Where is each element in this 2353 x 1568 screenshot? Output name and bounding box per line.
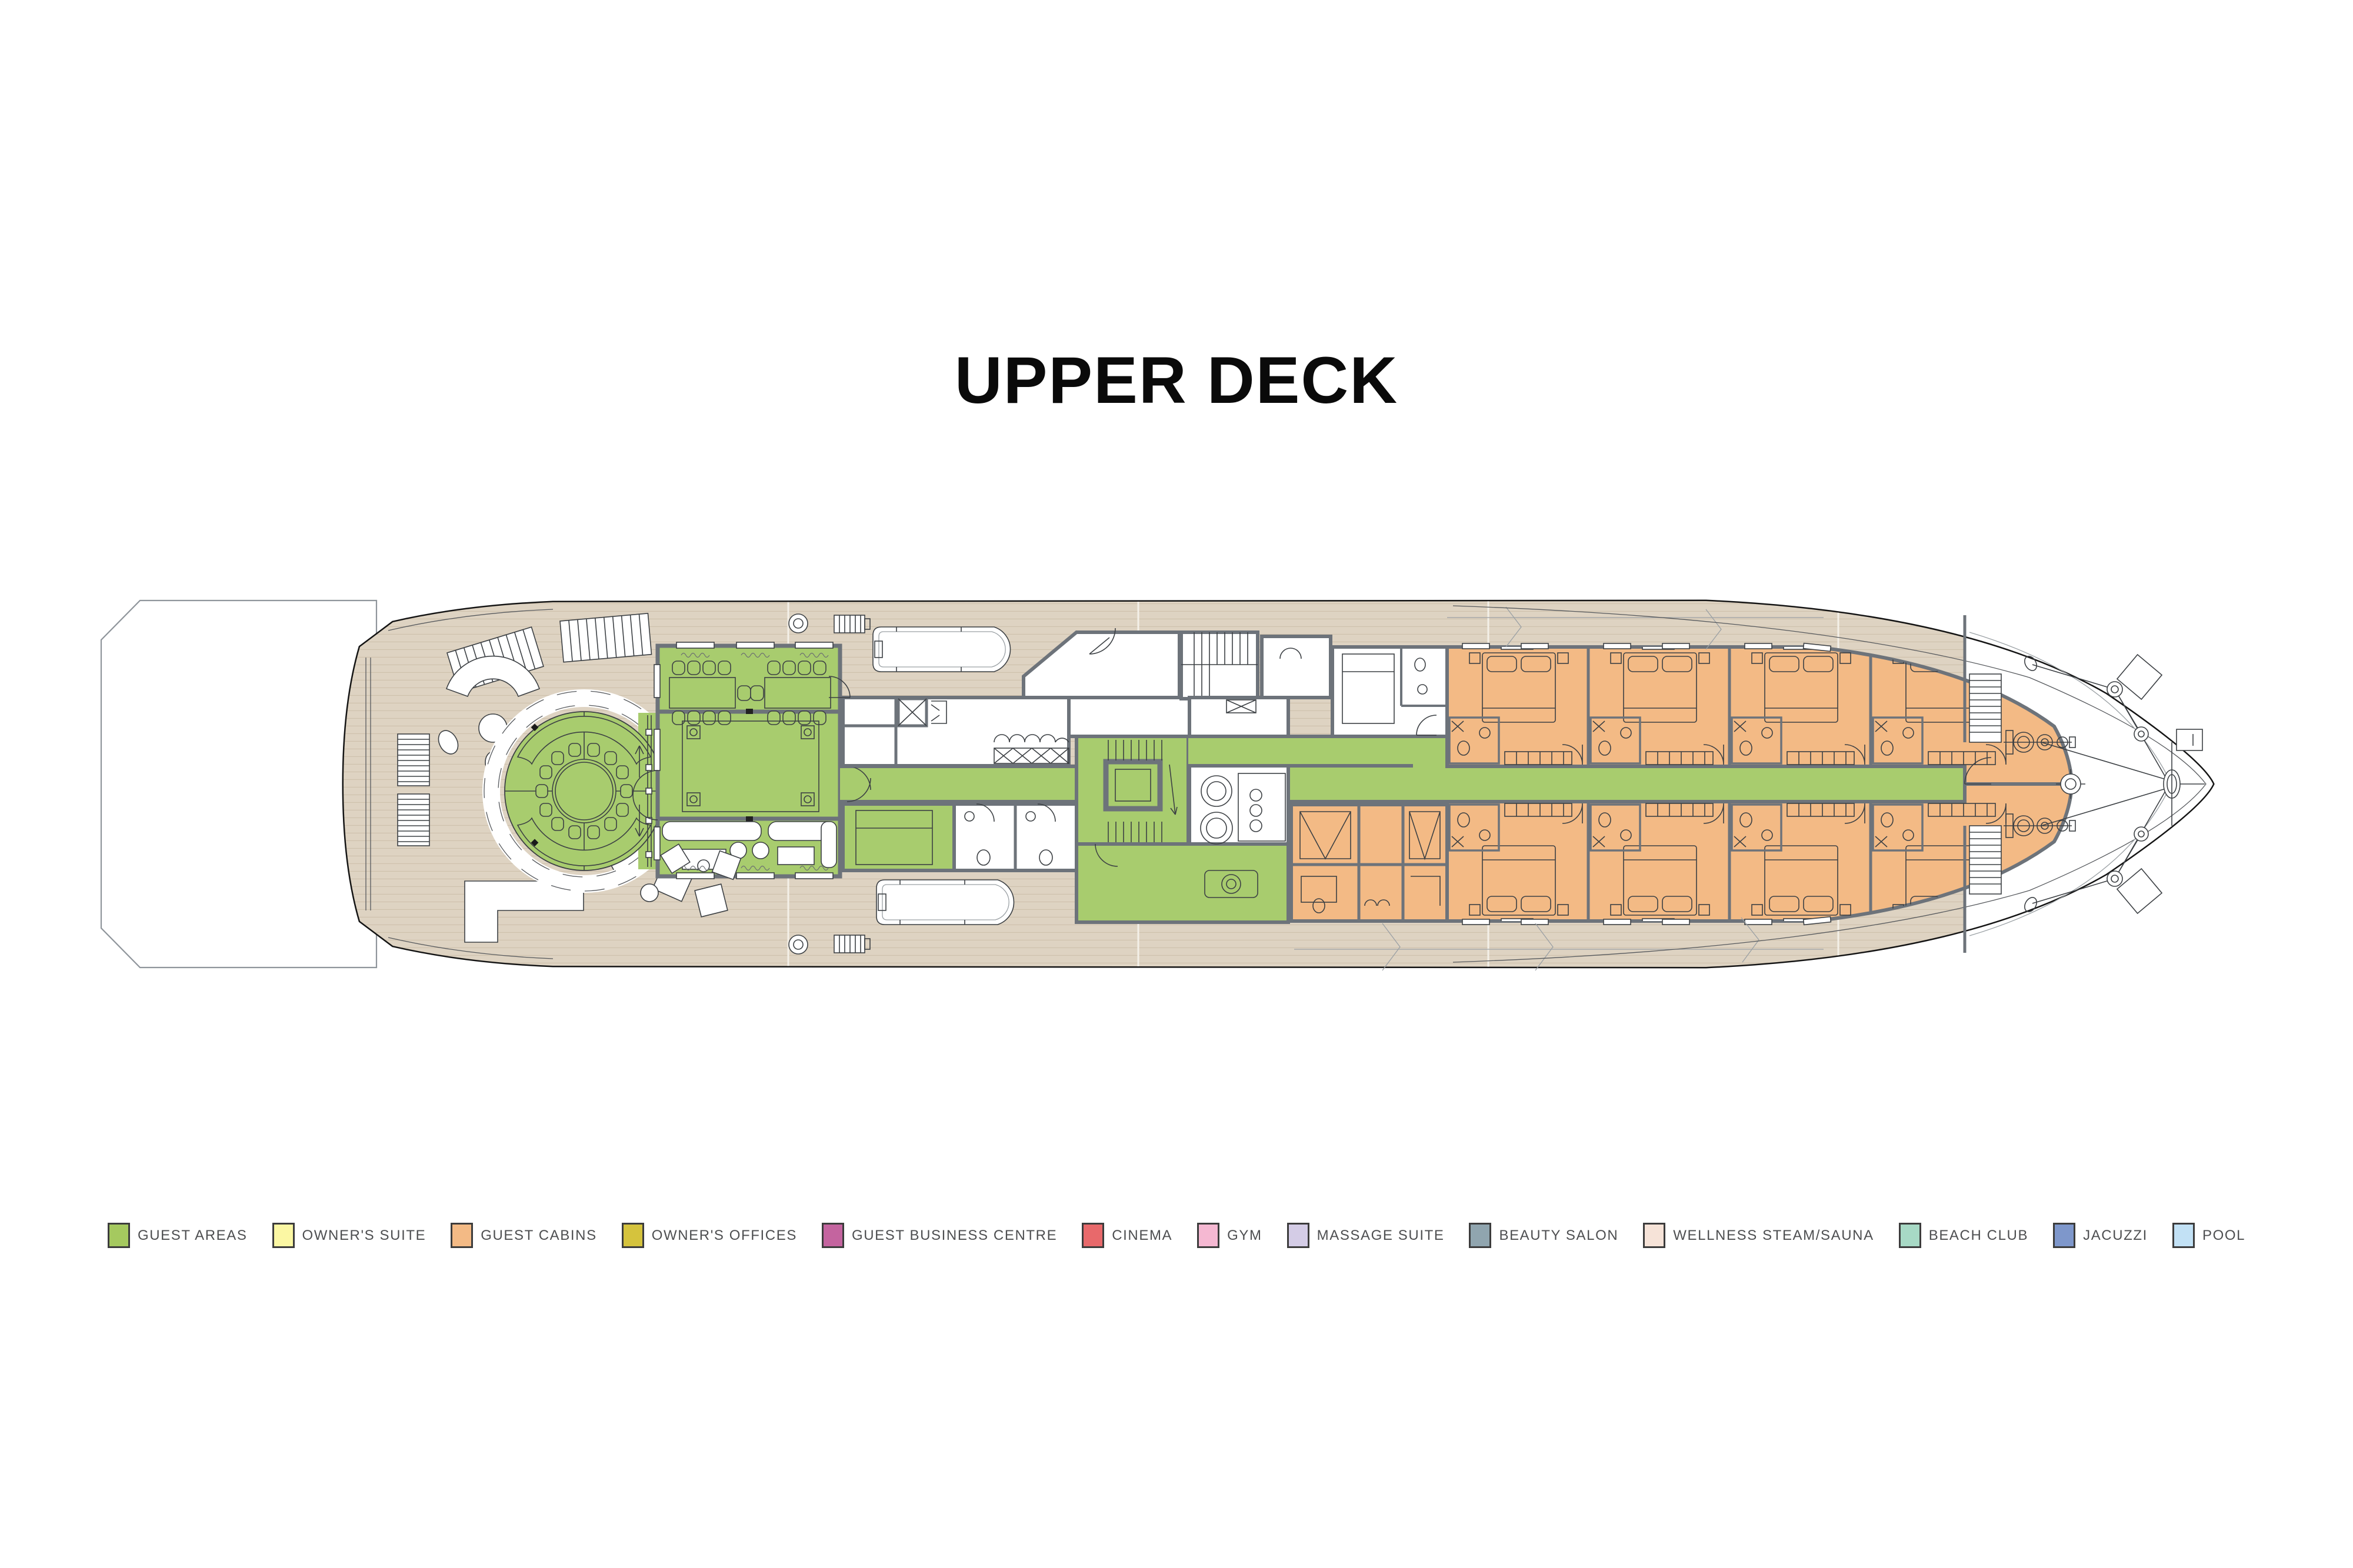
legend-item-owners-offices: OWNER'S OFFICES [622, 1223, 797, 1248]
legend-item-gym: GYM [1197, 1223, 1262, 1248]
legend-label: JACUZZI [2083, 1227, 2148, 1244]
massage-suite-swatch [1287, 1223, 1309, 1248]
deck-plan-drawing [0, 0, 2353, 1568]
stairwell-upper [1181, 632, 1258, 699]
upper-deck-plan-page: { "page": { "title": "UPPER DECK", "back… [0, 0, 2353, 1568]
legend-item-wellness-steam-sauna: WELLNESS STEAM/SAUNA [1643, 1223, 1874, 1248]
wc-rooms [954, 804, 1076, 870]
legend-item-cinema: CINEMA [1082, 1223, 1172, 1248]
wellness-steam-sauna-swatch [1643, 1223, 1665, 1248]
cinema-swatch [1082, 1223, 1104, 1248]
legend-label: BEACH CLUB [1929, 1227, 2028, 1244]
legend-item-guest-business-centre: GUEST BUSINESS CENTRE [822, 1223, 1057, 1248]
legend-label: BEAUTY SALON [1499, 1227, 1618, 1244]
legend-label: GUEST BUSINESS CENTRE [852, 1227, 1057, 1244]
legend-label: GYM [1227, 1227, 1262, 1244]
owners-offices-swatch [622, 1223, 644, 1248]
legend-label: MASSAGE SUITE [1317, 1227, 1445, 1244]
legend-label: POOL [2202, 1227, 2245, 1244]
legend-item-beauty-salon: BEAUTY SALON [1469, 1223, 1618, 1248]
tender-starboard [876, 880, 1014, 925]
guest-business-centre-swatch [822, 1223, 844, 1248]
pantry-room-lower [1076, 844, 1288, 922]
beach-club-swatch [1899, 1223, 1921, 1248]
legend-item-guest-cabins: GUEST CABINS [451, 1223, 596, 1248]
guest-areas-swatch [108, 1223, 130, 1248]
legend-item-jacuzzi: JACUZZI [2053, 1223, 2148, 1248]
legend-item-massage-suite: MASSAGE SUITE [1287, 1223, 1445, 1248]
owners-suite-swatch [272, 1223, 295, 1248]
legend-item-beach-club: BEACH CLUB [1899, 1223, 2028, 1248]
gym-swatch [1197, 1223, 1219, 1248]
legend-item-guest-areas: GUEST AREAS [108, 1223, 248, 1248]
legend-label: GUEST CABINS [481, 1227, 596, 1244]
legend-item-pool: POOL [2172, 1223, 2245, 1248]
legend-label: WELLNESS STEAM/SAUNA [1673, 1227, 1874, 1244]
jacuzzi-swatch [2053, 1223, 2075, 1248]
pool-swatch [2172, 1223, 2195, 1248]
dumbwaiter-room [1189, 698, 1288, 736]
galley [1189, 766, 1288, 844]
legend-label: OWNER'S SUITE [302, 1227, 426, 1244]
circular-dining-area [484, 691, 684, 891]
green-treatment-room [843, 804, 954, 870]
staff-cabin [1332, 647, 1447, 736]
swim-platform [101, 600, 376, 968]
beauty-salon-swatch [1469, 1223, 1491, 1248]
legend-label: GUEST AREAS [138, 1227, 248, 1244]
legend-label: CINEMA [1112, 1227, 1172, 1244]
legend-item-owners-suite: OWNER'S SUITE [272, 1223, 426, 1248]
legend-label: OWNER'S OFFICES [652, 1227, 797, 1244]
tender-port [873, 627, 1011, 672]
guest-cabins-swatch [451, 1223, 473, 1248]
legend: GUEST AREAS OWNER'S SUITE GUEST CABINS O… [0, 1223, 2353, 1248]
saloon-block [633, 642, 840, 879]
